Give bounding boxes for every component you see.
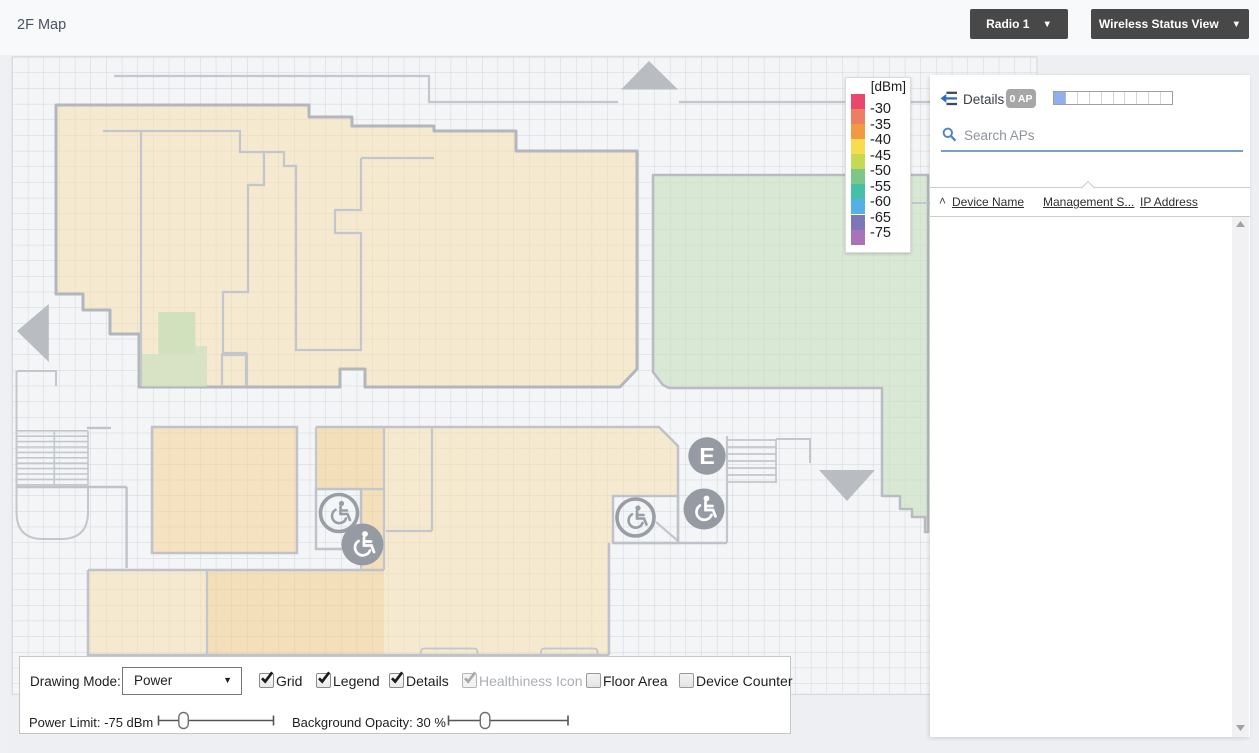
svg-text:E: E xyxy=(699,443,714,469)
